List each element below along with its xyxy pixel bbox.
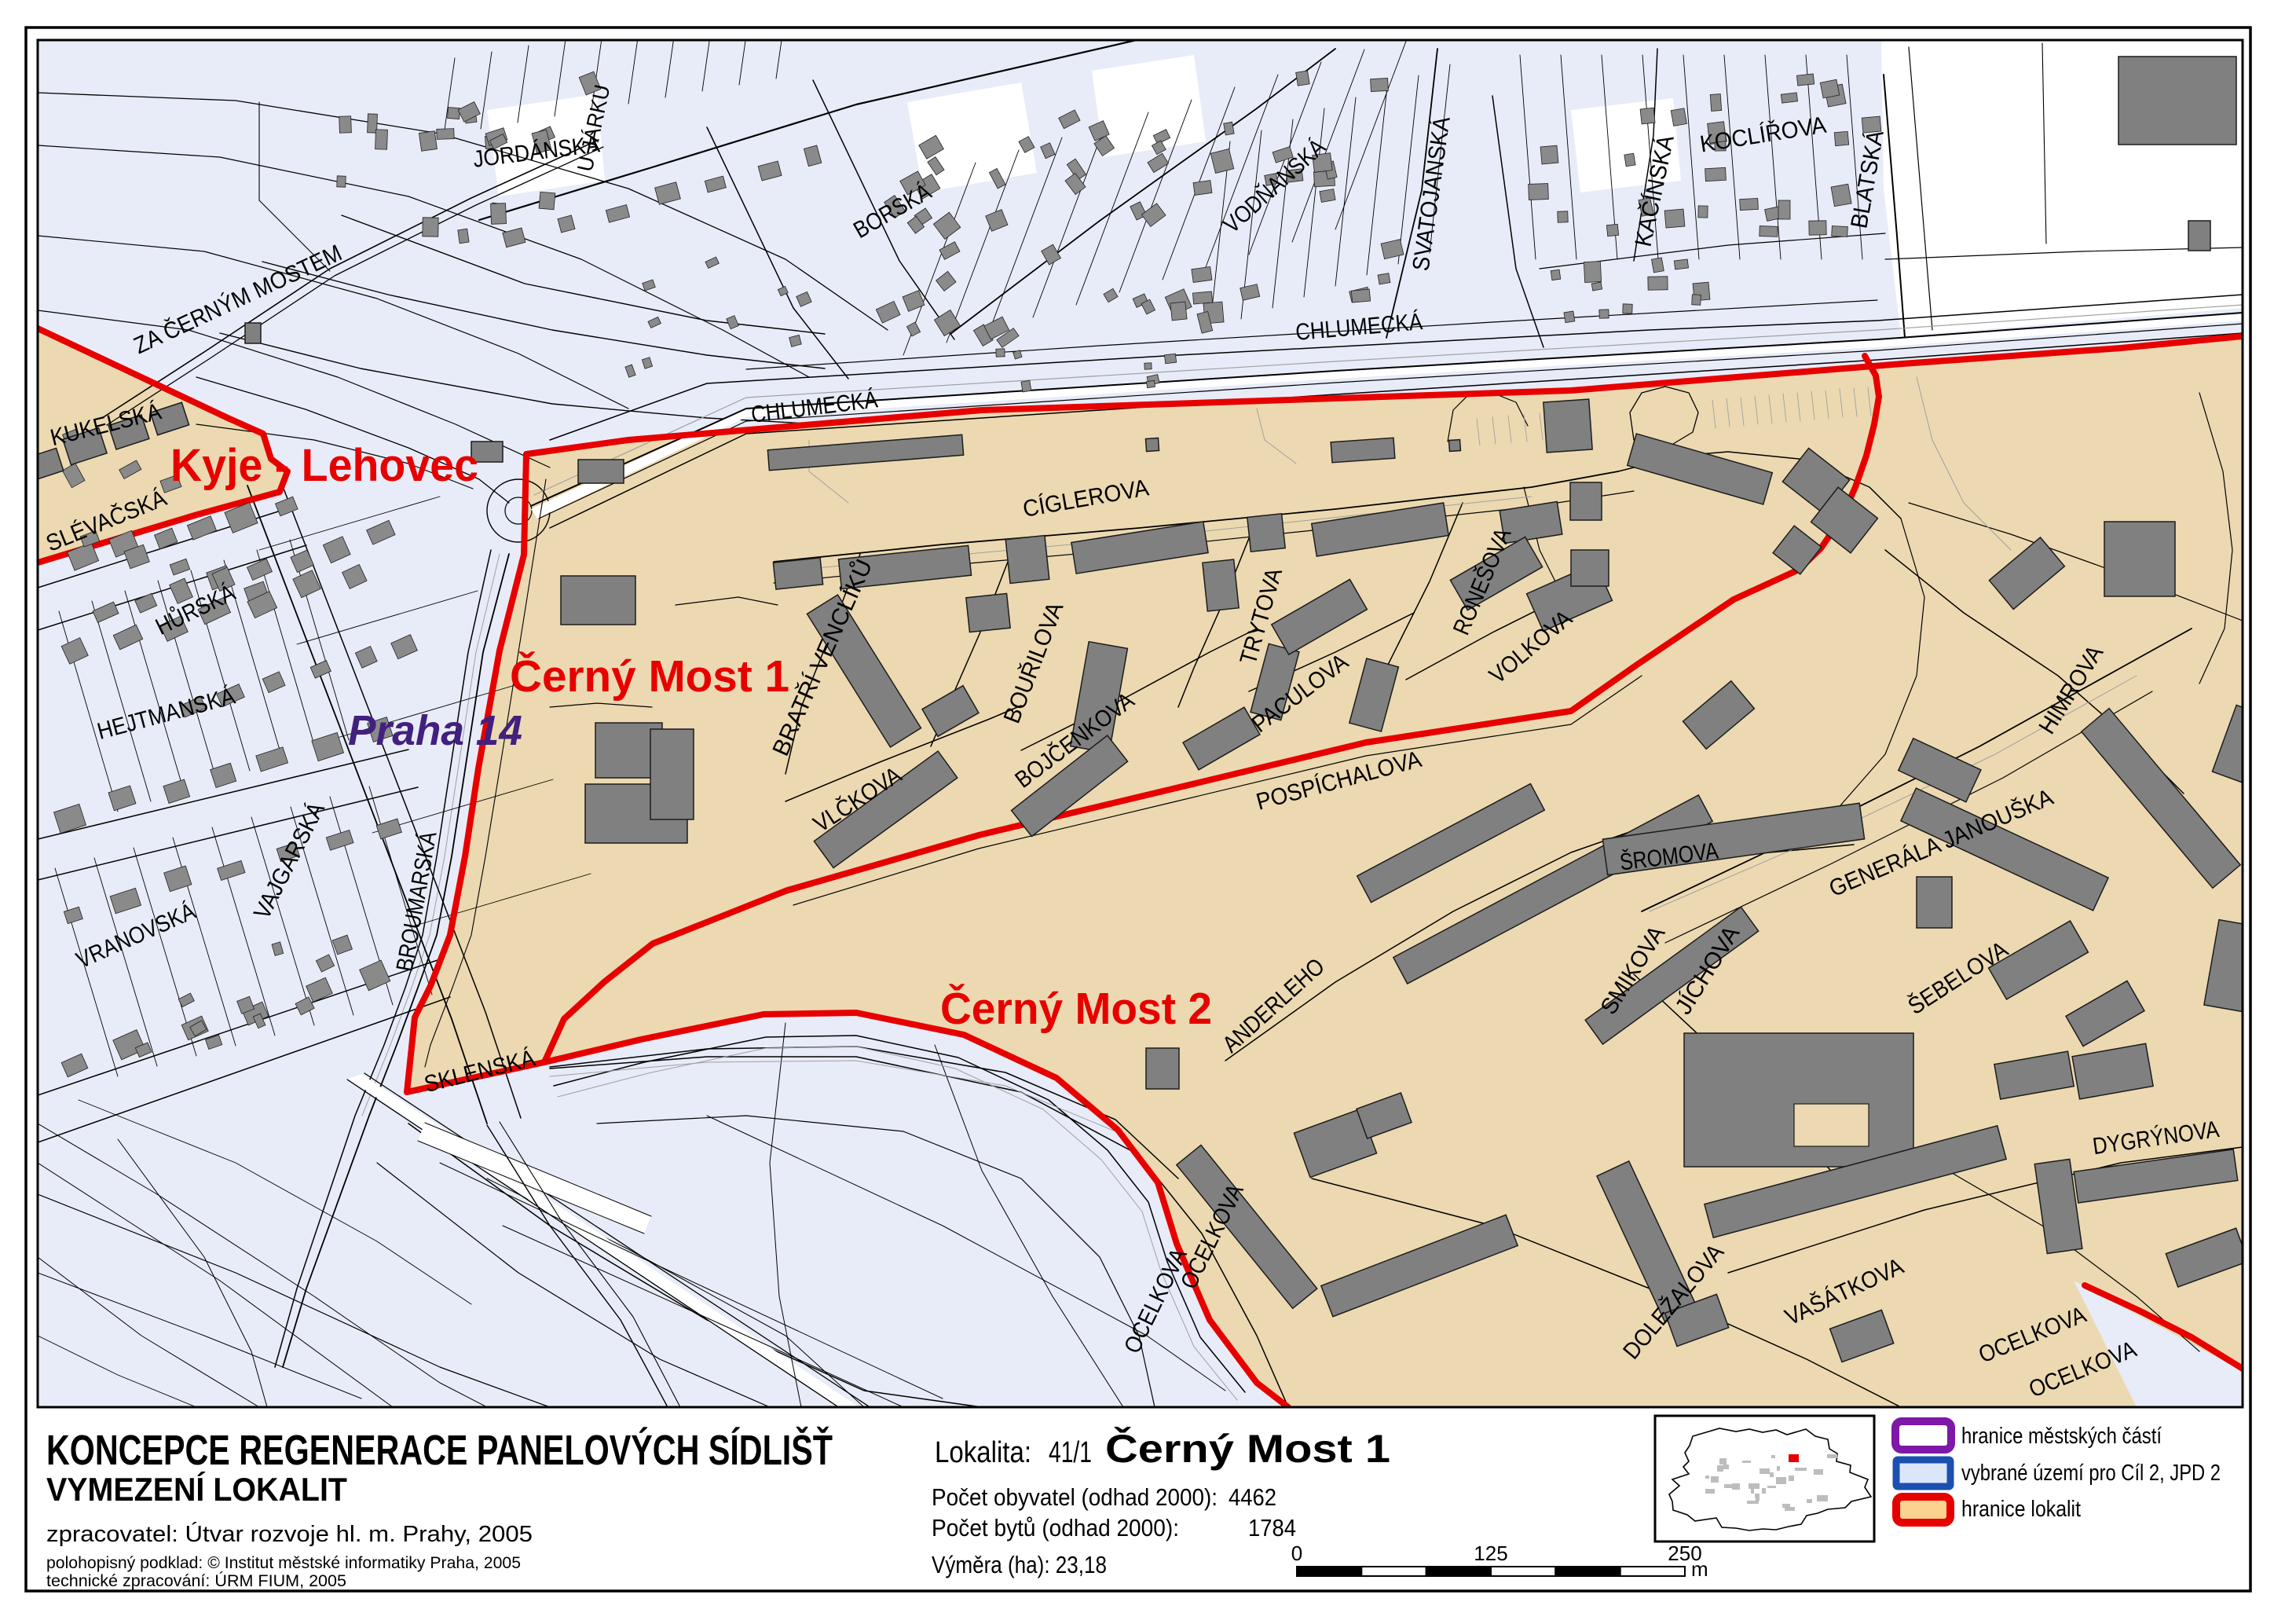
svg-text:polohopisný podklad: © Institu: polohopisný podklad: © Institut městské …: [46, 1554, 521, 1572]
svg-text:Černý Most 1: Černý Most 1: [510, 651, 789, 702]
svg-text:41/1: 41/1: [1049, 1436, 1092, 1469]
svg-text:4462: 4462: [1229, 1483, 1276, 1511]
svg-text:0: 0: [1291, 1542, 1302, 1565]
svg-text:Kyje - Lehovec: Kyje - Lehovec: [170, 440, 478, 491]
svg-text:Počet bytů (odhad 2000):: Počet bytů (odhad 2000):: [932, 1514, 1179, 1542]
svg-text:1784: 1784: [1248, 1514, 1296, 1542]
svg-text:Praha 14: Praha 14: [348, 707, 522, 754]
svg-text:VYMEZENÍ LOKALIT: VYMEZENÍ LOKALIT: [46, 1471, 347, 1508]
svg-text:m: m: [1691, 1557, 1708, 1581]
svg-text:zpracovatel: Útvar rozvoje hl.: zpracovatel: Útvar rozvoje hl. m. Prahy,…: [46, 1521, 533, 1547]
svg-text:Lokalita:: Lokalita:: [935, 1436, 1031, 1469]
svg-text:vybrané území pro Cíl 2, JPD 2: vybrané území pro Cíl 2, JPD 2: [1961, 1461, 2221, 1486]
svg-text:Výměra (ha): 23,18: Výměra (ha): 23,18: [932, 1551, 1107, 1578]
svg-text:125: 125: [1474, 1542, 1507, 1565]
svg-text:hranice městských částí: hranice městských částí: [1961, 1424, 2162, 1449]
svg-text:Černý Most 1: Černý Most 1: [1105, 1426, 1390, 1471]
svg-text:technické zpracování: ÚRM FIUM: technické zpracování: ÚRM FIUM, 2005: [46, 1572, 346, 1590]
svg-text:hranice lokalit: hranice lokalit: [1961, 1497, 2081, 1522]
svg-text:Počet obyvatel (odhad 2000):: Počet obyvatel (odhad 2000):: [932, 1483, 1218, 1511]
svg-text:Černý Most 2: Černý Most 2: [940, 983, 1212, 1034]
svg-text:KONCEPCE REGENERACE PANELOVÝCH: KONCEPCE REGENERACE PANELOVÝCH SÍDLIŠŤ: [46, 1426, 833, 1474]
